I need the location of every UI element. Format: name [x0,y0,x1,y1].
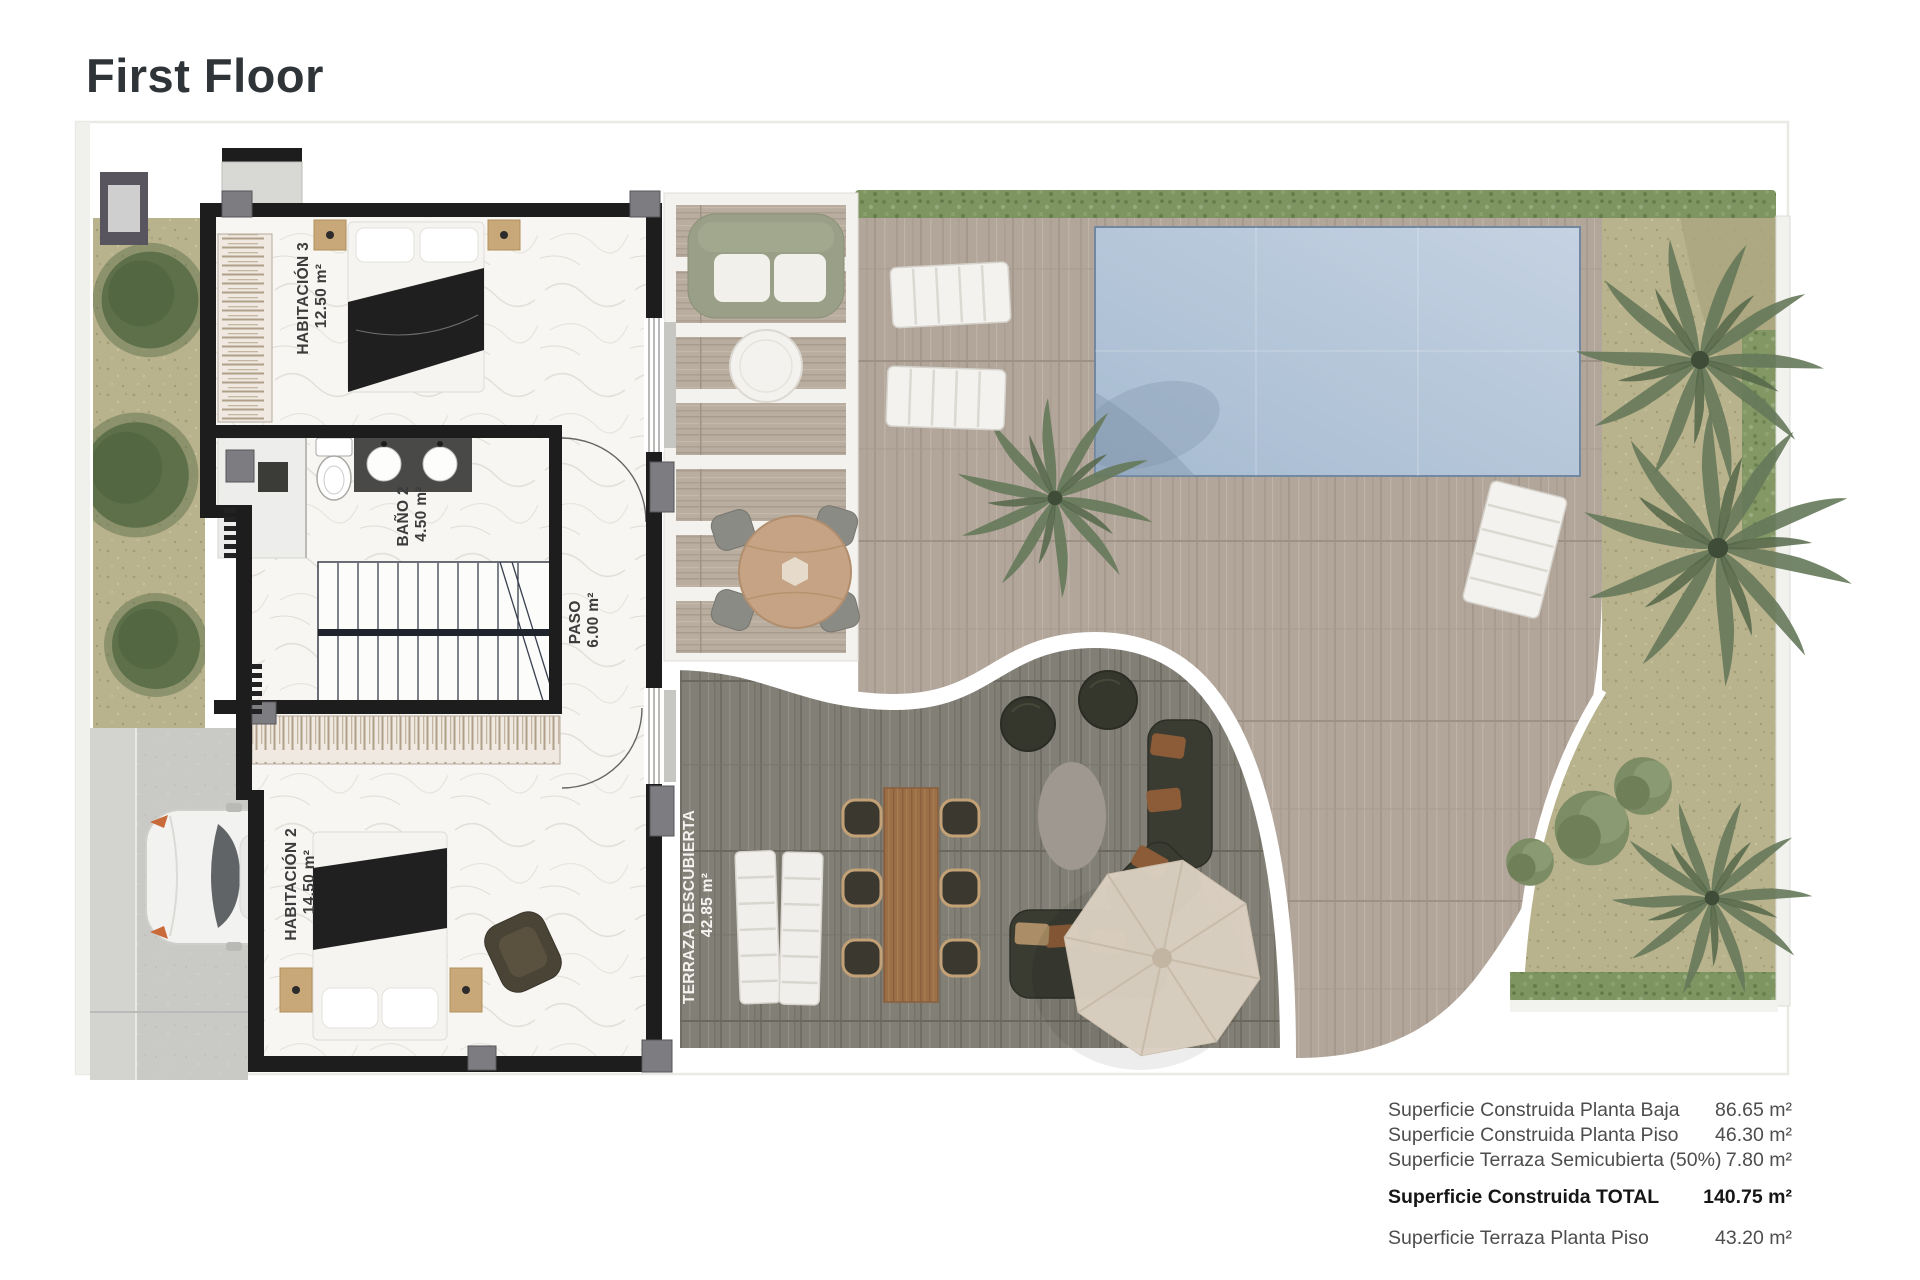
area-value: 140.75 m² [1703,1185,1792,1210]
house [200,148,676,1072]
room-label-paso: PASO 6.00 m² [567,592,602,648]
floor-plan: HABITACIÓN 3 12.50 m² BAÑO 2 4.50 m² PAS… [0,0,1920,1280]
hedge-top [855,190,1776,218]
area-value: 7.80 m² [1726,1148,1792,1173]
wardrobe [252,716,560,764]
areas-table: Superficie Construida Planta Baja 86.65 … [1388,1098,1792,1251]
area-label: Superficie Terraza Semicubierta (50%) [1388,1148,1721,1173]
sun-lounger [890,262,1011,328]
outdoor-dining-set [843,788,979,1002]
swimming-pool [1069,227,1580,485]
area-row: Superficie Terraza Planta Piso 43.20 m² [1388,1226,1792,1251]
area-row: Superficie Terraza Semicubierta (50%) 7.… [1388,1148,1792,1173]
pouf [1001,697,1055,751]
wardrobe [218,234,272,422]
coffee-table [730,330,802,402]
area-label: Superficie Terraza Planta Piso [1388,1226,1649,1251]
sun-lounger [886,366,1006,430]
pergola [664,193,862,661]
pouf [1079,671,1137,729]
round-rug [1038,762,1106,870]
area-label: Superficie Construida TOTAL [1388,1185,1659,1210]
window [644,318,676,452]
stairs [318,562,556,704]
area-row-total: Superficie Construida TOTAL 140.75 m² [1388,1185,1792,1210]
area-row: Superficie Construida Planta Baja 86.65 … [1388,1098,1792,1123]
area-row: Superficie Construida Planta Piso 46.30 … [1388,1123,1792,1148]
area-value: 86.65 m² [1715,1098,1792,1123]
entry-gate [100,172,148,245]
outdoor-sofa [688,214,844,318]
left-garden [74,218,208,728]
area-value: 43.20 m² [1715,1226,1792,1251]
page: First Floor [0,0,1920,1280]
toilet [316,438,352,500]
area-label: Superficie Construida Planta Piso [1388,1123,1679,1148]
hedge-bottom [1510,972,1778,1002]
vanity [354,436,472,492]
sun-lounger [735,851,780,1004]
area-label: Superficie Construida Planta Baja [1388,1098,1680,1123]
window [644,688,676,784]
area-value: 46.30 m² [1715,1123,1792,1148]
sun-lounger [779,852,823,1005]
